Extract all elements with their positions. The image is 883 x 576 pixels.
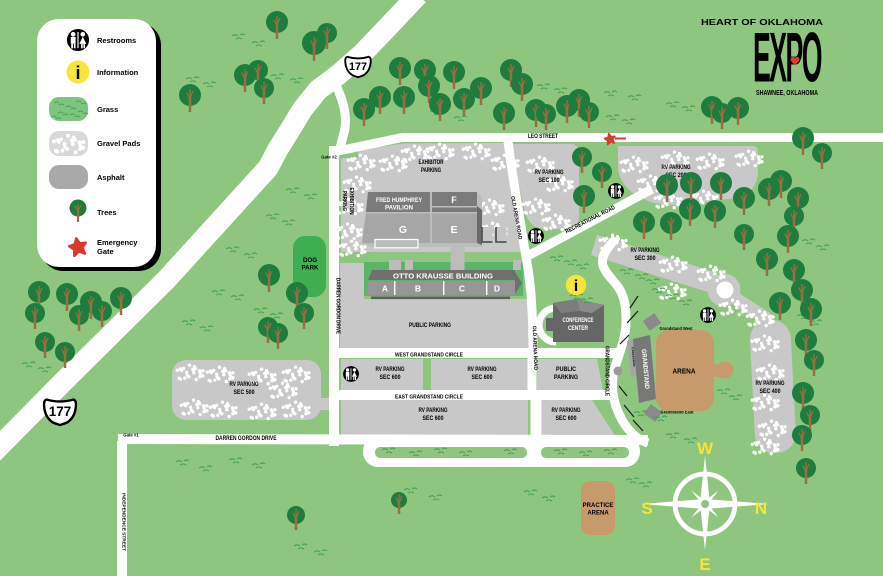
svg-text:SEC 100: SEC 100 [539, 178, 561, 184]
svg-text:SEC 600: SEC 600 [380, 375, 402, 381]
svg-text:S: S [641, 499, 652, 518]
svg-text:WEST GRANDSTAND CIRCLE: WEST GRANDSTAND CIRCLE [395, 353, 463, 359]
svg-text:EXPO: EXPO [753, 19, 822, 97]
svg-text:SEC 600: SEC 600 [556, 416, 578, 422]
svg-text:C: C [459, 284, 465, 294]
svg-text:Gate #1: Gate #1 [123, 433, 139, 438]
svg-text:RV PARKING: RV PARKING [468, 367, 497, 373]
svg-text:PUBLIC: PUBLIC [556, 367, 577, 373]
svg-text:FRED HUMPHREY: FRED HUMPHREY [376, 198, 422, 204]
svg-text:RV PARKING: RV PARKING [631, 248, 660, 254]
svg-text:A: A [382, 284, 388, 294]
svg-text:Information: Information [97, 68, 139, 77]
svg-text:RV PARKING: RV PARKING [376, 367, 405, 373]
svg-text:PAVILION: PAVILION [385, 206, 413, 212]
svg-text:PARKING: PARKING [554, 375, 578, 381]
svg-text:GRANDSTAND CIRCLE: GRANDSTAND CIRCLE [604, 346, 610, 396]
svg-text:DOG: DOG [303, 257, 317, 264]
svg-text:RV PARKING: RV PARKING [535, 170, 564, 176]
svg-text:SEC 600: SEC 600 [472, 375, 494, 381]
svg-text:SHAWNEE, OKLAHOMA: SHAWNEE, OKLAHOMA [756, 90, 818, 97]
svg-text:N: N [755, 499, 767, 518]
svg-text:PRACTICE: PRACTICE [583, 503, 614, 509]
svg-text:G: G [399, 224, 407, 236]
svg-text:PARKING: PARKING [341, 191, 347, 211]
svg-text:SEC 400: SEC 400 [760, 389, 782, 395]
svg-text:D: D [494, 284, 500, 294]
svg-text:Trees: Trees [97, 208, 117, 217]
svg-text:F: F [451, 195, 457, 205]
svg-text:PARK: PARK [301, 265, 319, 272]
svg-text:B: B [415, 284, 421, 294]
svg-text:OTTO KRAUSSE BUILDING: OTTO KRAUSSE BUILDING [393, 274, 494, 281]
svg-text:RV PARKING: RV PARKING [756, 381, 785, 387]
svg-text:CONFERENCE: CONFERENCE [563, 317, 594, 324]
svg-text:Restrooms: Restrooms [97, 36, 136, 45]
svg-text:CENTER: CENTER [568, 325, 588, 332]
svg-text:Emergency: Emergency [97, 238, 138, 247]
svg-text:E: E [699, 555, 710, 574]
svg-text:Asphalt: Asphalt [97, 173, 125, 182]
svg-text:Gate: Gate [97, 247, 114, 256]
svg-text:Grass: Grass [97, 105, 118, 114]
svg-text:ARENA: ARENA [587, 511, 609, 517]
svg-text:PUBLIC PARKING: PUBLIC PARKING [409, 322, 451, 329]
svg-text:DARREN GORDON DRIVE: DARREN GORDON DRIVE [216, 436, 277, 442]
svg-text:EXHIBITOR: EXHIBITOR [419, 159, 444, 166]
svg-text:PARKING: PARKING [421, 167, 441, 174]
svg-text:Gate #2: Gate #2 [321, 155, 337, 160]
svg-text:INDEPENDENCE STREET: INDEPENDENCE STREET [121, 493, 127, 551]
svg-text:EXHIBITION: EXHIBITION [348, 188, 354, 215]
svg-text:SEC 600: SEC 600 [423, 416, 445, 422]
svg-text:ARENA: ARENA [673, 369, 696, 376]
svg-text:RV PARKING: RV PARKING [662, 165, 691, 171]
svg-text:RV PARKING: RV PARKING [419, 408, 448, 414]
svg-text:i: i [574, 278, 578, 295]
svg-text:DARREN GORDON DRIVE: DARREN GORDON DRIVE [335, 278, 341, 334]
svg-text:RV PARKING: RV PARKING [230, 382, 259, 388]
svg-text:EAST GRANDSTAND CIRCLE: EAST GRANDSTAND CIRCLE [395, 395, 463, 401]
svg-text:SEC 300: SEC 300 [635, 256, 657, 262]
svg-text:Gravel Pads: Gravel Pads [97, 139, 140, 148]
svg-text:LEO STREET: LEO STREET [528, 134, 558, 140]
svg-text:E: E [450, 224, 457, 236]
svg-text:RV PARKING: RV PARKING [552, 408, 581, 414]
svg-text:SEC 500: SEC 500 [234, 390, 256, 396]
svg-text:W: W [697, 439, 714, 458]
svg-text:i: i [75, 63, 80, 83]
